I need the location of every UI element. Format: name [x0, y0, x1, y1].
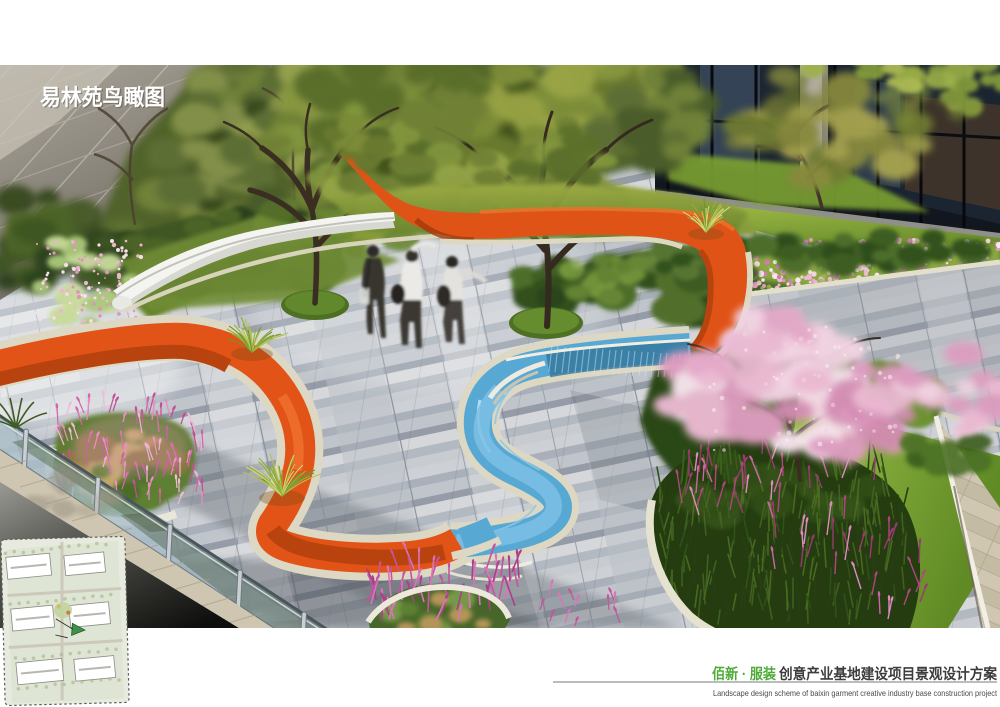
svg-text:Landscape design scheme of bai: Landscape design scheme of baixin garmen… [713, 688, 998, 698]
svg-text:创意产业基地建设项目景观设计方案: 创意产业基地建设项目景观设计方案 [778, 665, 997, 683]
svg-text:易林苑鸟瞰图: 易林苑鸟瞰图 [40, 85, 165, 110]
svg-text:佰新 · 服装: 佰新 · 服装 [712, 665, 776, 683]
